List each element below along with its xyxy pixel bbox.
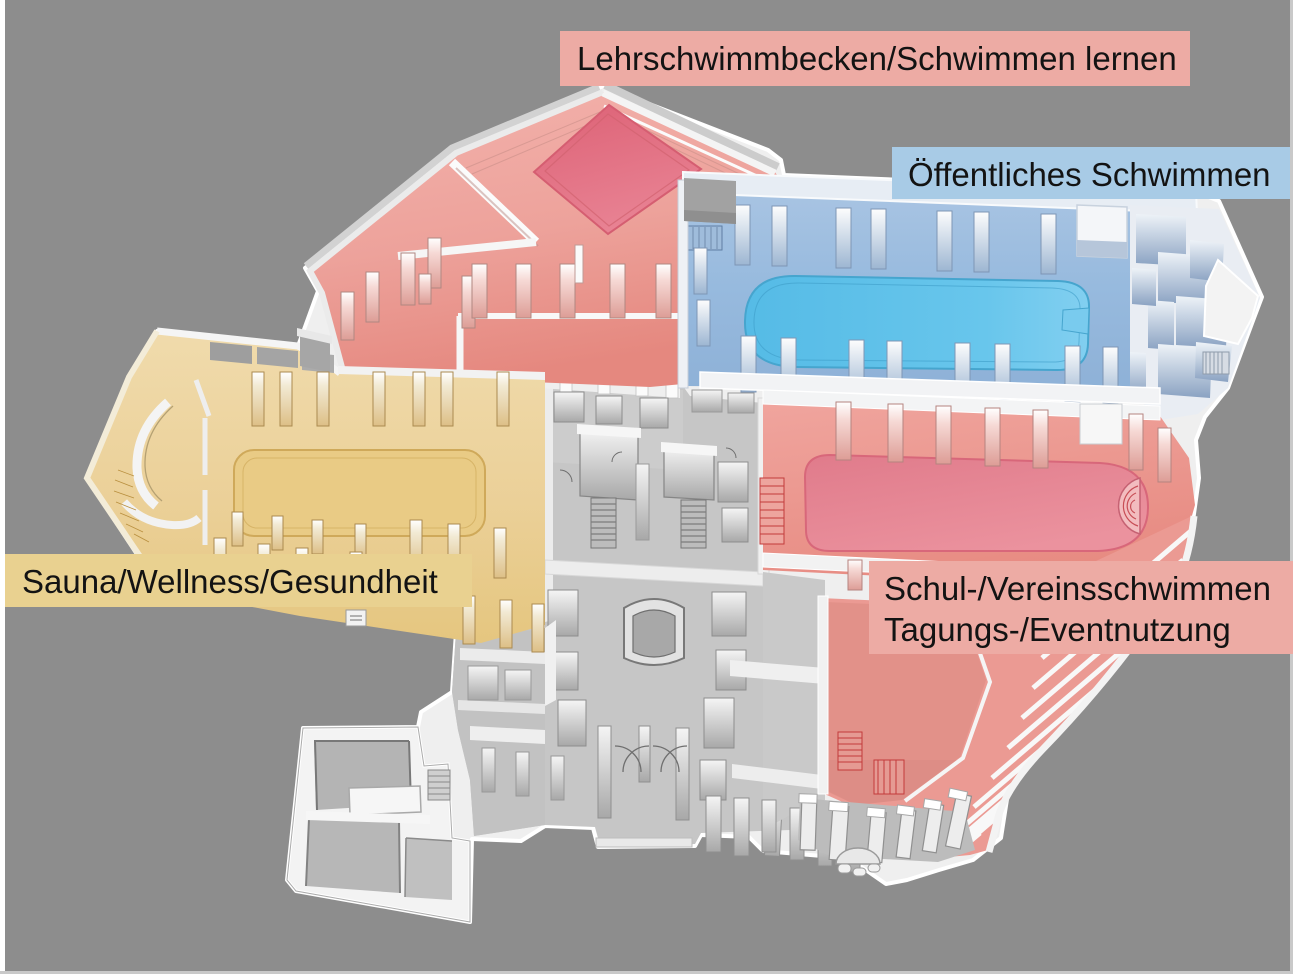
svg-text:Schul-/Vereinsschwimmen: Schul-/Vereinsschwimmen (884, 570, 1271, 607)
svg-text:Öffentliches Schwimmen: Öffentliches Schwimmen (908, 156, 1271, 193)
svg-text:Lehrschwimmbecken/Schwimmen le: Lehrschwimmbecken/Schwimmen lernen (577, 40, 1177, 77)
svg-text:Tagungs-/Eventnutzung: Tagungs-/Eventnutzung (884, 611, 1231, 648)
svg-text:Sauna/Wellness/Gesundheit: Sauna/Wellness/Gesundheit (22, 563, 438, 600)
